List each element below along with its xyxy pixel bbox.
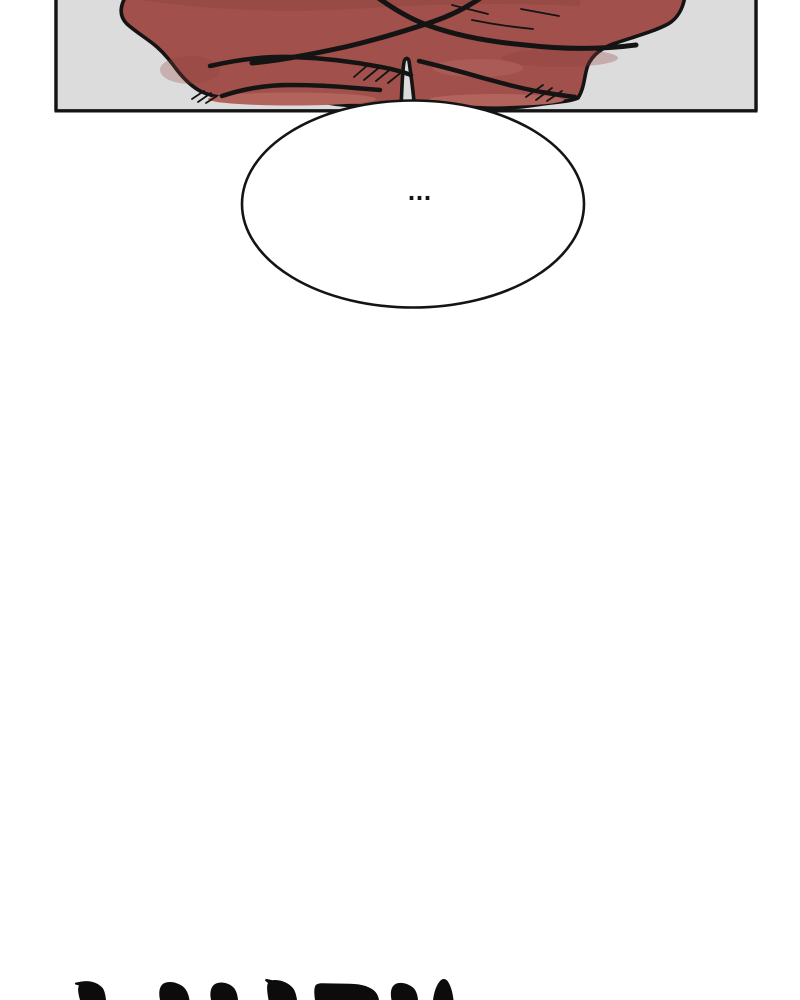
letter-top [210,983,238,1000]
robe-shade-right [502,49,618,67]
letter-top [314,983,379,1000]
letter-top [265,979,297,1000]
cutoff-lettering [75,979,454,1000]
letter-top [75,981,106,1000]
letter-top [159,982,189,1000]
comic-panel [54,0,758,111]
comic-panel-art [0,0,800,1000]
robe-shade-left [160,56,220,84]
letter-top [433,979,454,1000]
letter-top [391,983,418,1000]
speech-bubble-text: ... [389,181,450,205]
webtoon-strip: ... [0,0,800,1000]
